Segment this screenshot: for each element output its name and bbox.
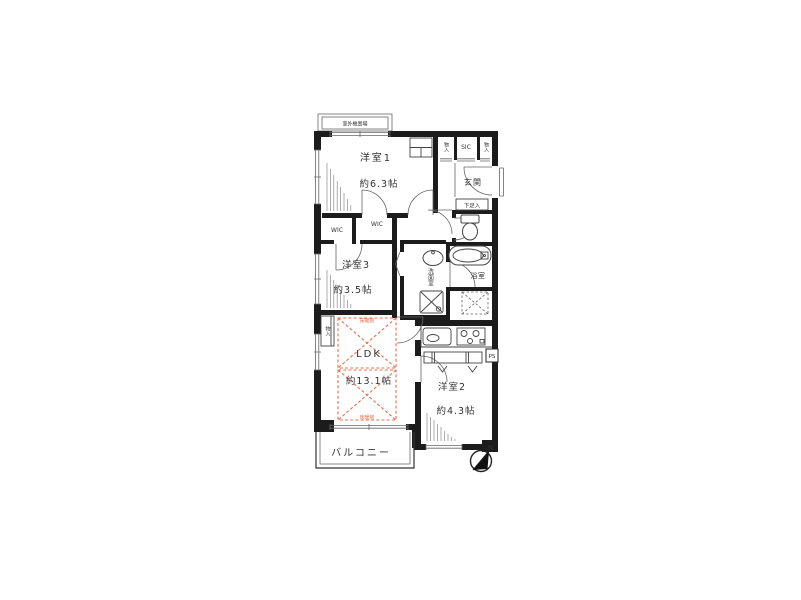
bathroom-label: 浴室 [471,271,486,280]
ldk-name: LDK [356,349,382,360]
room2-door-arc [421,356,447,382]
toilet [461,215,479,240]
entrance-label: 玄関 [464,177,482,187]
room1-name: 洋室1 [360,151,392,164]
sic-label: SIC [461,144,471,151]
room2-size: 約4.3帖 [436,405,475,417]
floor-plan-page: 室外機置場 [0,0,801,600]
floor-heating-label-top: 床暖房 [359,318,374,325]
kitchen-cabinets [424,352,482,372]
room1-shelf [410,138,432,157]
floor-heating-label-bottom: 床暖房 [359,414,374,421]
shoe-box-label: 下足入 [464,203,481,210]
room1-wic-door-arc [362,190,387,215]
outdoor-unit-label: 室外機置場 [342,121,367,128]
floor-heating-labels: 床暖房 床暖房 [359,318,374,422]
closet-top-left-label: 物入 [443,141,449,152]
room3-size: 約3.5帖 [333,284,372,296]
balcony-label: バルコニー [331,447,391,459]
outdoor-unit-box: 室外機置場 [318,114,392,131]
pipe-space-label: PS [489,354,496,360]
closet-ldk-label: 物入 [325,325,331,336]
closet-sliding-doors [440,159,490,161]
closet-top-right-label: 物入 [483,141,489,152]
washing-machine-pan [420,291,443,313]
compass-north-label: N [488,444,493,452]
floor-plan: 室外機置場 [0,0,801,600]
room1-size: 約6.3帖 [359,178,398,190]
ldk-size: 約13.1帖 [346,375,392,387]
stove [457,328,485,345]
fixtures [321,138,498,372]
wic-left-label: WIC [331,227,343,234]
wash-basin [423,251,443,266]
wic-right-label: WIC [371,221,383,228]
room3-name: 洋室3 [342,259,370,271]
washroom-label: 洗面室 [427,267,434,286]
refrigerator-space [462,292,488,314]
floor-heating-area [338,318,396,420]
room1-entry-door-arc [408,190,433,215]
room2-name: 洋室2 [438,381,466,393]
hall-door-arc [428,210,452,234]
bathtub [449,246,491,265]
kitchen-counter [421,326,492,347]
